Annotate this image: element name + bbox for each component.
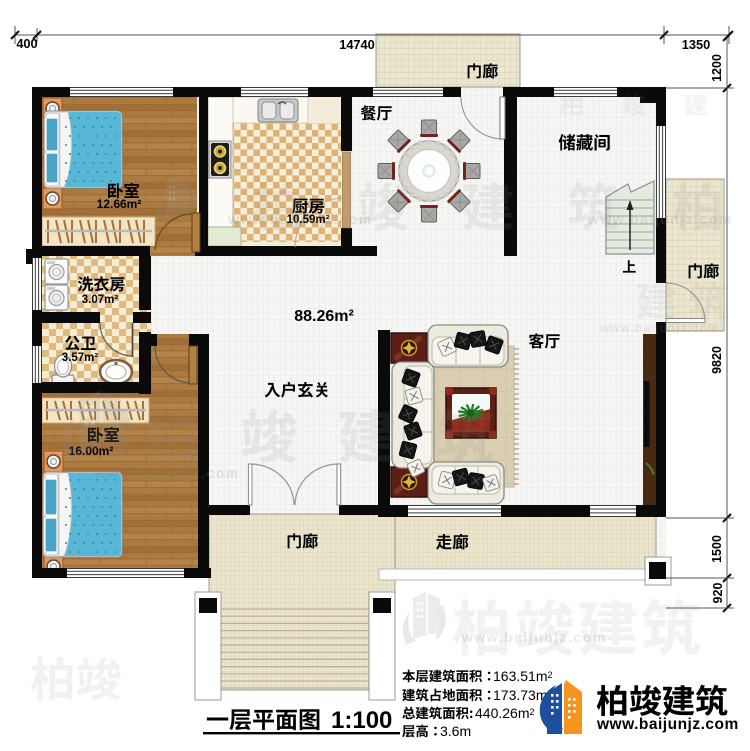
svg-text:www.baijunjz.com: www.baijunjz.com xyxy=(461,629,607,645)
svg-text:920: 920 xyxy=(711,583,725,604)
svg-text:12.66m²: 12.66m² xyxy=(97,197,142,211)
svg-text:9820: 9820 xyxy=(710,346,724,374)
svg-text:www.baijunjz.com: www.baijunjz.com xyxy=(587,211,733,227)
svg-text:1500: 1500 xyxy=(710,535,724,563)
svg-text:www.baijunjz.com: www.baijunjz.com xyxy=(599,321,720,335)
svg-text:1200: 1200 xyxy=(710,54,724,82)
svg-text:www.baijunjz.com: www.baijunjz.com xyxy=(227,211,373,227)
svg-text:3.07m²: 3.07m² xyxy=(82,294,119,306)
svg-text:www.baijunjz.com: www.baijunjz.com xyxy=(596,716,739,733)
svg-text:88.26m²: 88.26m² xyxy=(294,308,354,325)
svg-text:1350: 1350 xyxy=(682,37,710,52)
svg-text:400: 400 xyxy=(16,36,37,51)
svg-text:3.6m: 3.6m xyxy=(440,723,471,739)
svg-text:3.57m²: 3.57m² xyxy=(62,352,99,364)
svg-text:1:100: 1:100 xyxy=(331,707,392,734)
svg-text:www.baijunjz.com: www.baijunjz.com xyxy=(94,465,240,481)
svg-text:163.51m2: 163.51m2 xyxy=(493,668,553,684)
svg-text:14740: 14740 xyxy=(339,37,375,52)
svg-text:440.26m2: 440.26m2 xyxy=(475,705,535,721)
